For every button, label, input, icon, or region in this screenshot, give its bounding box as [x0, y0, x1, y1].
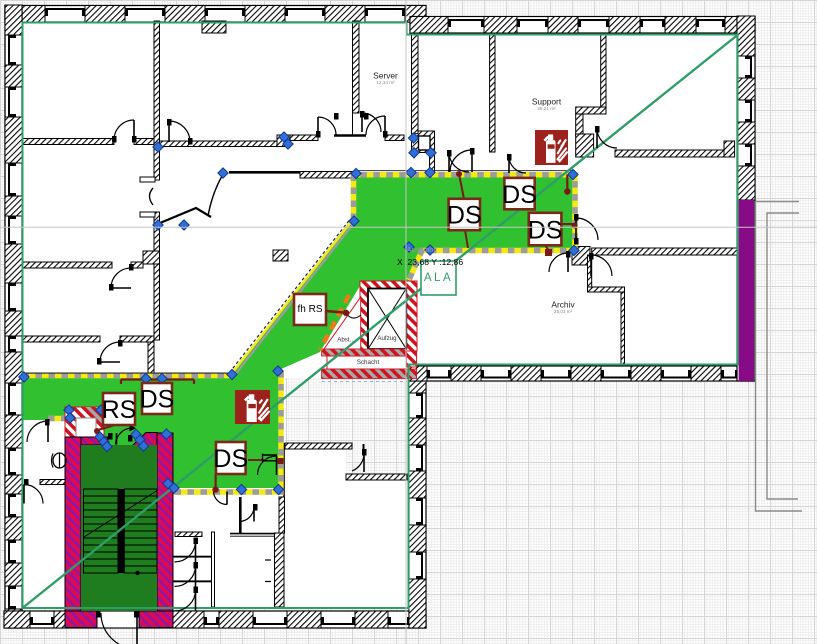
- svg-text:ALA: ALA: [424, 272, 453, 284]
- svg-text:Aufzug: Aufzug: [377, 335, 397, 342]
- svg-text:DS: DS: [502, 181, 537, 209]
- svg-text:X :23,68 Y :12,86: X :23,68 Y :12,86: [397, 257, 463, 267]
- svg-text:Schacht: Schacht: [357, 359, 380, 366]
- svg-text:Support: Support: [532, 97, 562, 107]
- svg-text:DS: DS: [213, 445, 248, 473]
- svg-text:fh RS: fh RS: [297, 304, 322, 315]
- svg-text:Archiv: Archiv: [551, 300, 575, 310]
- svg-text:DS: DS: [528, 216, 563, 244]
- svg-text:DS: DS: [140, 386, 175, 414]
- svg-text:12,34 m²: 12,34 m²: [376, 80, 395, 85]
- svg-text:28,21 m²: 28,21 m²: [537, 106, 556, 111]
- svg-text:Auswahl: Auswahl: [407, 245, 436, 254]
- svg-text:RS: RS: [102, 396, 137, 424]
- svg-text:25,03 m²: 25,03 m²: [554, 309, 573, 314]
- svg-text:DS: DS: [447, 202, 482, 230]
